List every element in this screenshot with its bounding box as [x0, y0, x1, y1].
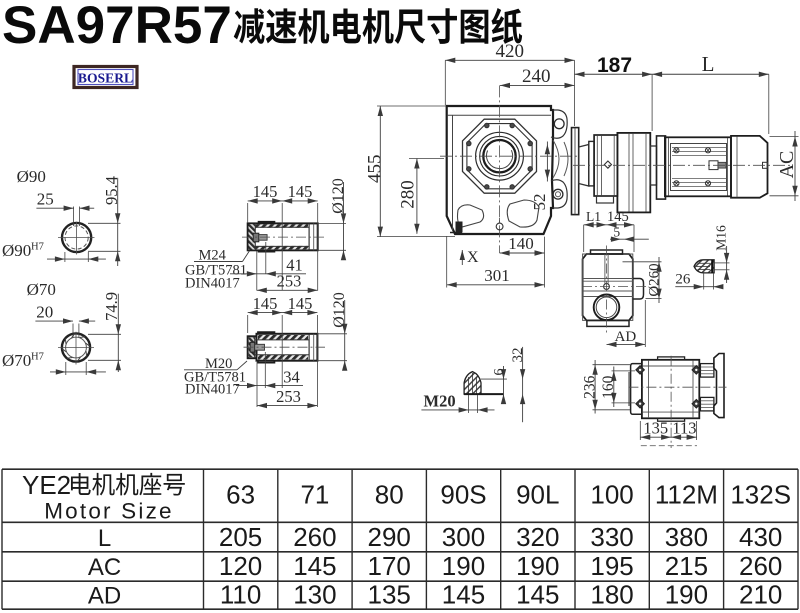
svg-text:AD: AD: [88, 583, 121, 610]
svg-text:330: 330: [590, 522, 633, 552]
svg-text:215: 215: [665, 551, 708, 581]
svg-text:120: 120: [219, 551, 262, 581]
svg-text:Motor Size: Motor Size: [44, 499, 174, 524]
svg-text:X: X: [467, 249, 479, 266]
svg-text:Ø90: Ø90: [17, 167, 46, 186]
svg-text:52: 52: [530, 194, 549, 211]
svg-text:25: 25: [37, 190, 54, 209]
svg-text:32: 32: [510, 348, 526, 363]
svg-text:63: 63: [226, 480, 255, 510]
svg-text:90L: 90L: [516, 480, 559, 510]
svg-text:195: 195: [590, 551, 633, 581]
svg-text:145: 145: [288, 182, 313, 201]
svg-text:74.9: 74.9: [102, 292, 121, 321]
svg-text:112M: 112M: [655, 480, 718, 510]
svg-text:100: 100: [590, 480, 633, 510]
svg-text:Ø120: Ø120: [330, 178, 347, 214]
svg-text:190: 190: [665, 580, 708, 610]
svg-text:AD: AD: [615, 329, 637, 345]
svg-text:253: 253: [276, 387, 301, 406]
svg-text:H7: H7: [31, 352, 44, 363]
svg-text:Ø70: Ø70: [27, 280, 56, 299]
svg-text:L: L: [98, 525, 111, 552]
svg-text:145: 145: [442, 580, 485, 610]
svg-text:90S: 90S: [440, 480, 486, 510]
svg-text:Ø120: Ø120: [331, 292, 348, 328]
svg-text:SA97R57: SA97R57: [2, 0, 232, 55]
svg-text:Ø90: Ø90: [2, 241, 31, 260]
svg-text:301: 301: [484, 266, 510, 285]
svg-text:80: 80: [375, 480, 404, 510]
svg-text:DIN4017: DIN4017: [185, 276, 240, 292]
svg-text:300: 300: [442, 522, 485, 552]
svg-text:AC: AC: [776, 151, 798, 179]
svg-text:YE2: YE2: [22, 470, 71, 500]
svg-text:AC: AC: [88, 554, 121, 581]
svg-text:Ø260: Ø260: [646, 263, 662, 296]
svg-text:253: 253: [277, 272, 302, 291]
svg-text:145: 145: [253, 182, 278, 201]
svg-text:145: 145: [288, 294, 313, 313]
svg-text:320: 320: [516, 522, 559, 552]
svg-text:34: 34: [283, 367, 300, 386]
svg-text:H7: H7: [31, 242, 44, 253]
svg-text:380: 380: [665, 522, 708, 552]
svg-text:113: 113: [672, 419, 696, 438]
svg-text:135: 135: [643, 419, 668, 438]
svg-text:160: 160: [600, 375, 617, 399]
svg-text:190: 190: [442, 551, 485, 581]
svg-text:210: 210: [739, 580, 782, 610]
svg-text:290: 290: [368, 522, 411, 552]
svg-text:140: 140: [508, 234, 534, 253]
svg-text:L: L: [702, 52, 715, 76]
svg-text:110: 110: [220, 580, 261, 610]
svg-text:26: 26: [675, 272, 691, 288]
svg-text:5: 5: [613, 225, 620, 240]
svg-text:20: 20: [36, 303, 53, 322]
svg-text:DIN4017: DIN4017: [185, 382, 240, 398]
svg-text:260: 260: [739, 551, 782, 581]
svg-text:6: 6: [492, 369, 507, 376]
svg-text:260: 260: [293, 522, 336, 552]
svg-text:240: 240: [522, 66, 551, 87]
svg-text:145: 145: [516, 580, 559, 610]
svg-text:170: 170: [368, 551, 411, 581]
svg-text:BOSERL: BOSERL: [78, 70, 133, 85]
svg-text:236: 236: [581, 375, 598, 399]
svg-text:145: 145: [293, 551, 336, 581]
svg-text:145: 145: [253, 294, 278, 313]
svg-text:205: 205: [219, 522, 262, 552]
svg-text:190: 190: [516, 551, 559, 581]
svg-text:Ø70: Ø70: [2, 351, 31, 370]
svg-text:130: 130: [293, 580, 336, 610]
svg-text:180: 180: [590, 580, 633, 610]
svg-text:420: 420: [495, 41, 524, 62]
svg-text:430: 430: [739, 522, 782, 552]
svg-text:455: 455: [365, 155, 386, 184]
svg-text:M20: M20: [424, 392, 456, 411]
svg-text:71: 71: [300, 480, 329, 510]
svg-text:L1: L1: [586, 209, 601, 224]
svg-text:95.4: 95.4: [102, 176, 121, 205]
svg-text:187: 187: [597, 54, 632, 77]
svg-text:135: 135: [368, 580, 411, 610]
svg-text:132S: 132S: [730, 480, 791, 510]
svg-text:280: 280: [397, 180, 418, 209]
